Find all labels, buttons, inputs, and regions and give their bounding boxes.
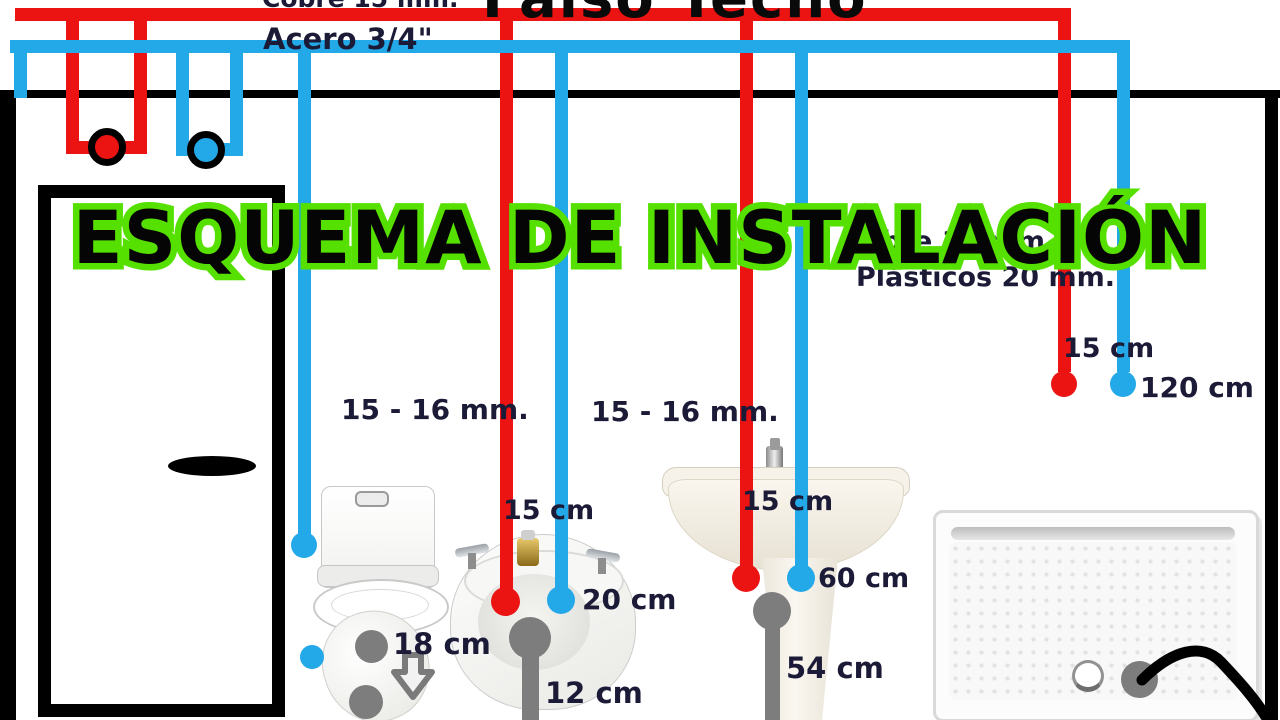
bidet-spout-knob <box>521 530 535 540</box>
label-shower-cold-height: 120 cm <box>1140 371 1254 404</box>
right-wall <box>1265 90 1278 720</box>
label-shower-hot-offset: 15 cm <box>1063 333 1154 364</box>
label-copper-branch: Cobre 18 mm <box>843 226 1045 257</box>
cold-u-leg-right <box>230 53 243 150</box>
bidet-drain-pipe <box>522 650 539 720</box>
hot-meter-dot <box>88 128 126 166</box>
bidet-right-tap-stem <box>598 558 606 574</box>
sink-faucet-top <box>770 438 780 450</box>
label-false-ceiling: Falso Techo <box>482 0 868 31</box>
bidet-drain-dot <box>509 617 551 659</box>
cold-toilet-drop <box>298 53 311 535</box>
cold-main-pipe <box>10 40 1130 53</box>
sink-drain-pipe <box>765 622 780 720</box>
toilet-drain-dot-upper <box>355 630 388 663</box>
label-sink-hot-offset: 15 cm <box>742 486 833 517</box>
left-wall <box>0 90 16 720</box>
shower-drain-hose <box>1128 638 1280 720</box>
shower-tray-lip <box>951 527 1235 540</box>
cold-bidet-outlet-dot <box>547 586 575 614</box>
sink-drain-dot <box>753 592 791 630</box>
cold-sink-outlet-dot <box>787 564 815 592</box>
hot-shower-outlet-dot <box>1051 371 1077 397</box>
cold-shower-drop <box>1117 40 1130 372</box>
label-pipe-size-sink: 15 - 16 mm. <box>591 395 779 428</box>
hot-sink-outlet-dot <box>732 564 760 592</box>
hot-shower-drop <box>1058 8 1071 372</box>
cold-meter-dot <box>187 131 225 169</box>
label-sink-drain-height: 54 cm <box>786 651 884 685</box>
cold-u-leg-left <box>176 53 189 150</box>
label-bidet-hot-offset: 15 cm <box>503 495 594 526</box>
label-sink-tap-spacing: 60 cm <box>818 563 909 594</box>
installation-diagram: Cobre 15 mm. Falso Techo Acero 3/4" ESQU… <box>0 0 1280 720</box>
cold-toilet-outlet-dot <box>291 532 317 558</box>
cold-left-stub <box>14 53 27 98</box>
label-copper-main: Cobre 15 mm. <box>262 0 459 13</box>
toilet-flush-button <box>355 491 389 507</box>
hot-bidet-outlet-dot <box>491 587 520 616</box>
label-steel-main: Acero 3/4" <box>263 22 433 56</box>
cold-toilet-cistern-dot <box>300 645 324 669</box>
bidet-center-spout <box>517 538 539 566</box>
cold-shower-outlet-dot <box>1110 371 1136 397</box>
door <box>38 185 285 717</box>
label-toilet-drain-offset: 18 cm <box>393 627 491 661</box>
label-plastic-branch: Plásticos 20 mm. <box>856 262 1115 293</box>
label-bidet-tap-spacing: 20 cm <box>582 583 677 616</box>
label-bidet-drain-offset: 12 cm <box>545 676 643 710</box>
label-pipe-size-bidet: 15 - 16 mm. <box>341 393 529 426</box>
door-handle <box>168 456 256 476</box>
ceiling-line <box>0 90 1280 98</box>
toilet-drain-dot-lower <box>349 685 383 719</box>
shower-drain-hole <box>1072 660 1104 692</box>
bidet-left-tap-stem <box>468 553 476 569</box>
